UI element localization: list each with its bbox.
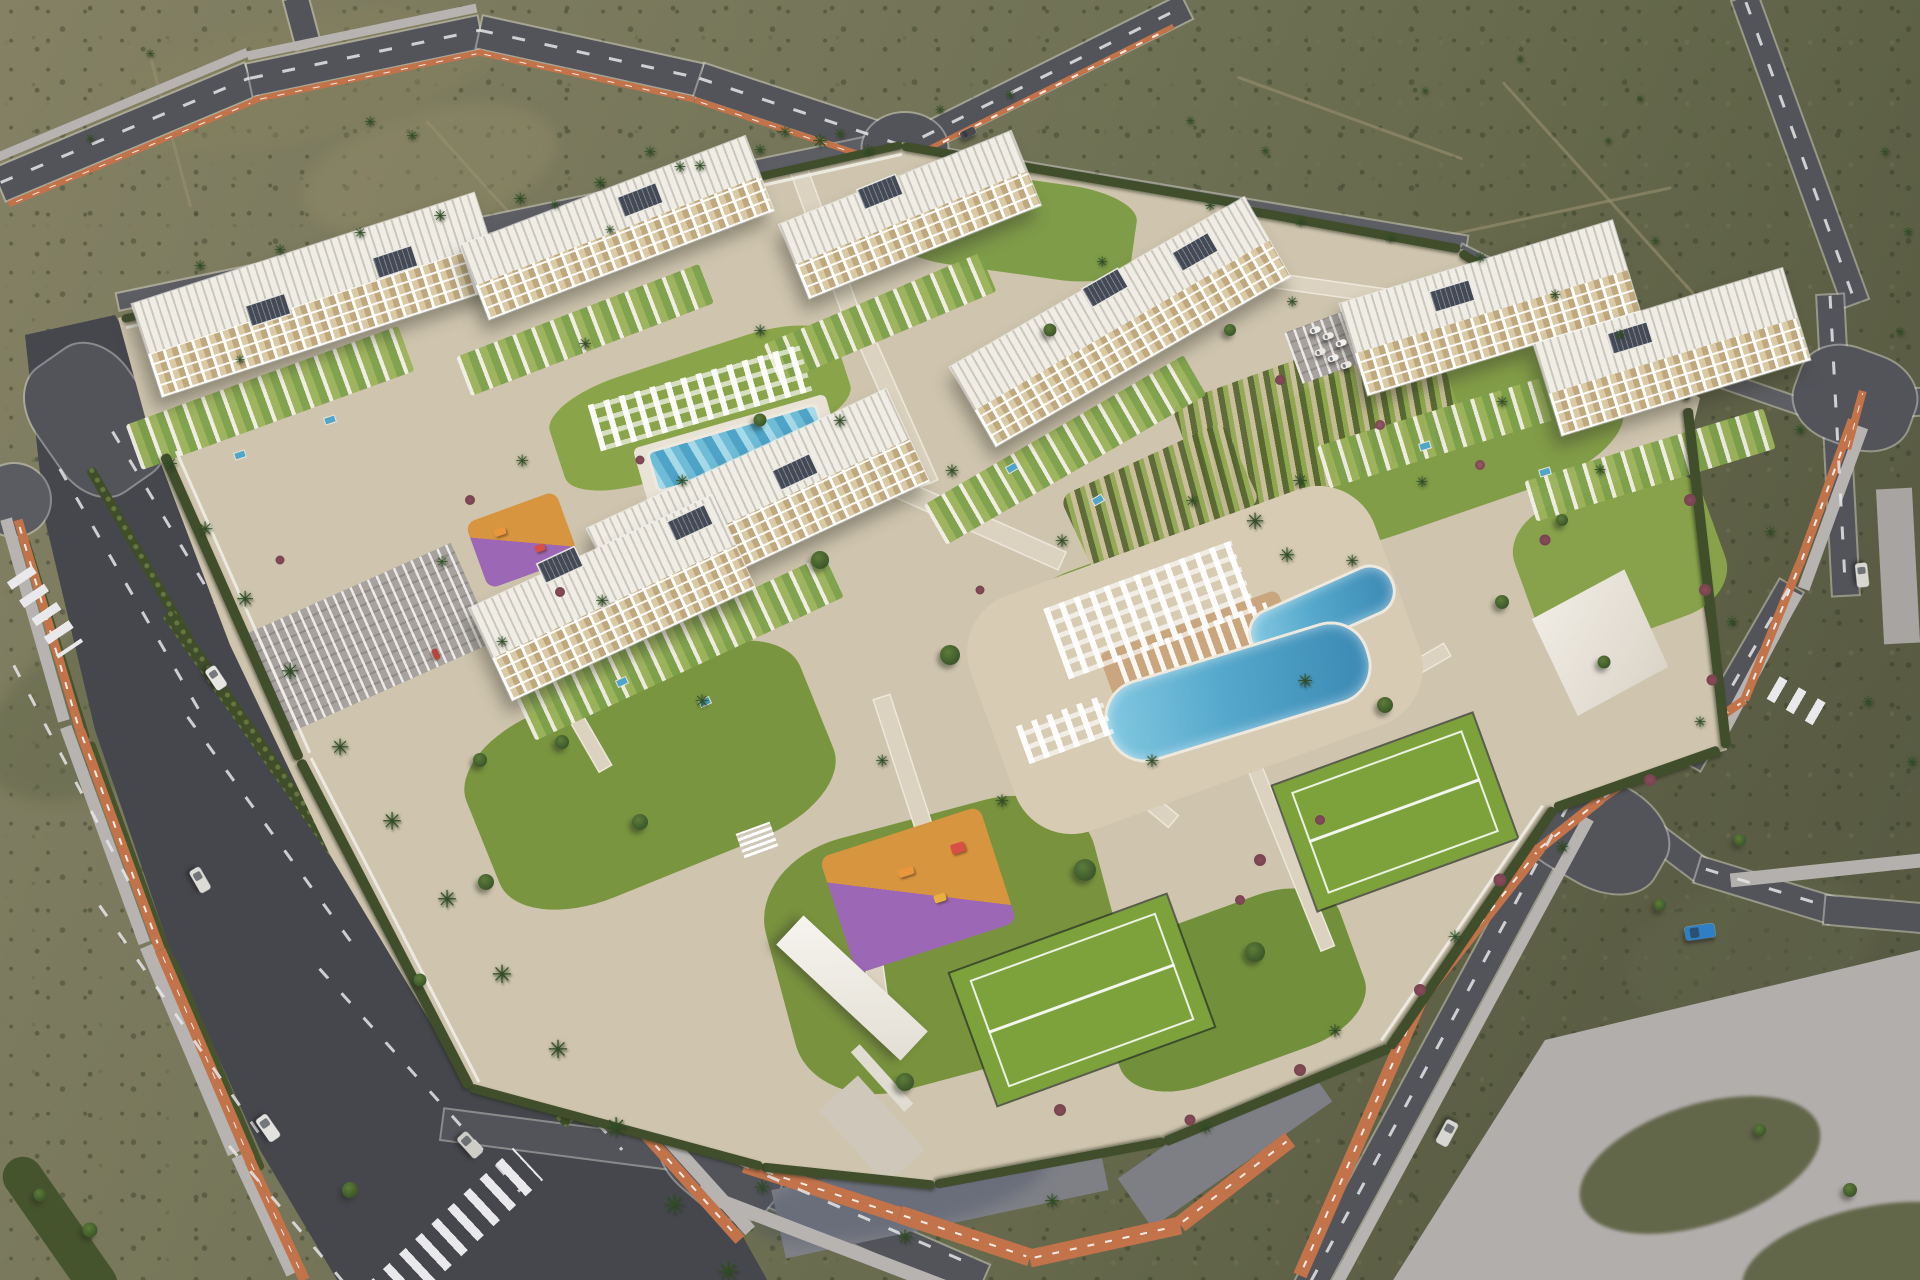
- shrub: [1494, 874, 1507, 887]
- tree: [1598, 656, 1611, 669]
- tree: [1074, 859, 1096, 881]
- palm: [1496, 396, 1508, 408]
- tree: [1734, 834, 1746, 846]
- palm: [1005, 90, 1015, 100]
- shrub: [1644, 774, 1656, 786]
- shrub: [636, 456, 645, 465]
- palm: [1346, 556, 1359, 569]
- palm: [813, 135, 828, 150]
- palm: [1097, 257, 1108, 268]
- palm: [146, 51, 155, 60]
- tree: [414, 974, 427, 987]
- palm: [281, 663, 299, 681]
- palm: [550, 200, 560, 210]
- palm: [1636, 96, 1644, 104]
- palm: [676, 476, 689, 489]
- palm: [606, 1118, 627, 1139]
- palm: [1246, 513, 1264, 531]
- palm: [194, 260, 206, 272]
- palm: [516, 456, 529, 469]
- palm: [1880, 147, 1890, 157]
- tree: [555, 735, 569, 749]
- palm: [1862, 696, 1874, 708]
- palm: [197, 522, 213, 538]
- palm: [1328, 1025, 1342, 1039]
- palm: [1298, 675, 1313, 690]
- palm: [237, 592, 254, 609]
- palm: [434, 211, 447, 224]
- palm: [1651, 238, 1660, 247]
- shrub: [1707, 675, 1718, 686]
- car-white: [1855, 562, 1869, 587]
- shrub: [1375, 420, 1385, 430]
- palm: [163, 458, 178, 473]
- tree: [1556, 514, 1568, 526]
- shrub: [555, 587, 565, 597]
- palm: [1145, 755, 1159, 769]
- aerial-render: [0, 0, 1920, 1280]
- shrub: [1475, 460, 1485, 470]
- palm: [674, 161, 686, 173]
- palm: [1186, 496, 1199, 509]
- palm: [1604, 138, 1612, 146]
- shrub: [465, 495, 475, 505]
- palm: [694, 160, 706, 172]
- palm: [754, 144, 766, 156]
- palm: [1287, 297, 1298, 308]
- tree: [811, 551, 829, 569]
- palm: [1416, 476, 1428, 488]
- palm: [605, 225, 615, 235]
- tree: [1245, 942, 1265, 962]
- shrub: [1699, 584, 1711, 596]
- palm: [596, 596, 609, 609]
- shrub: [1275, 375, 1285, 385]
- palm: [1726, 616, 1738, 628]
- palm: [1261, 148, 1270, 157]
- palm: [833, 415, 847, 429]
- palm: [876, 756, 889, 769]
- tree: [1843, 1183, 1857, 1197]
- tree: [34, 1189, 47, 1202]
- tree: [1654, 899, 1666, 911]
- palm: [383, 813, 402, 832]
- palm: [1906, 756, 1918, 768]
- palm: [1516, 56, 1524, 64]
- shrub: [1185, 1115, 1196, 1126]
- palm: [897, 1230, 913, 1246]
- palm: [1045, 1195, 1060, 1210]
- palm: [664, 1195, 685, 1216]
- palm: [1421, 88, 1429, 96]
- palm: [754, 1180, 770, 1196]
- palm: [1594, 464, 1606, 476]
- palm: [779, 126, 791, 138]
- palm: [695, 695, 709, 709]
- palm: [718, 1262, 739, 1280]
- palm: [1205, 201, 1216, 212]
- tree: [754, 414, 767, 427]
- palm: [354, 227, 366, 239]
- shrub: [276, 556, 285, 565]
- tree: [478, 874, 494, 890]
- palm: [935, 105, 945, 115]
- tree: [1377, 697, 1393, 713]
- tree: [632, 814, 648, 830]
- palm: [1198, 1121, 1213, 1136]
- palm: [496, 636, 508, 648]
- palm: [492, 965, 512, 985]
- palm: [1279, 548, 1295, 564]
- tree: [1495, 595, 1509, 609]
- palm: [1555, 841, 1569, 855]
- palm: [1794, 424, 1806, 436]
- palm: [579, 339, 592, 352]
- shrub: [976, 586, 985, 595]
- tree: [940, 645, 960, 665]
- palm: [1764, 526, 1776, 538]
- tree: [342, 1182, 358, 1198]
- palm: [1186, 118, 1195, 127]
- tree: [473, 753, 487, 767]
- palm: [644, 146, 656, 158]
- shrub: [1540, 535, 1551, 546]
- tree: [1754, 1124, 1766, 1136]
- palm: [834, 128, 846, 140]
- shrub: [1414, 984, 1426, 996]
- tree: [1044, 324, 1057, 337]
- tree: [83, 1223, 98, 1238]
- shrub: [1235, 895, 1245, 905]
- palm: [1295, 217, 1306, 228]
- palm: [862, 146, 875, 159]
- palm: [995, 795, 1009, 809]
- tree: [1224, 324, 1236, 336]
- palm: [514, 194, 527, 207]
- palm: [86, 136, 95, 145]
- palm: [548, 1040, 568, 1060]
- palm: [1694, 716, 1706, 728]
- palm: [1903, 227, 1913, 237]
- palm: [1448, 931, 1462, 945]
- shrub: [1054, 1104, 1066, 1116]
- palm: [1385, 233, 1396, 244]
- palm: [438, 891, 457, 910]
- tree: [896, 1073, 914, 1091]
- palm: [235, 355, 245, 365]
- palm: [1615, 330, 1626, 341]
- shrub: [1254, 854, 1266, 866]
- palm: [331, 739, 349, 757]
- palm: [594, 178, 607, 191]
- palm: [274, 244, 286, 256]
- shrub: [1684, 494, 1696, 506]
- palm: [1550, 290, 1561, 301]
- shrub: [1294, 1064, 1306, 1076]
- palm: [945, 465, 959, 479]
- shrub: [1315, 815, 1325, 825]
- palm: [754, 326, 767, 339]
- palm: [365, 117, 376, 128]
- palm: [1055, 535, 1069, 549]
- palm: [436, 556, 448, 568]
- palm: [1475, 253, 1486, 264]
- palm: [1895, 327, 1905, 337]
- palm: [407, 131, 418, 142]
- palm: [1293, 475, 1308, 490]
